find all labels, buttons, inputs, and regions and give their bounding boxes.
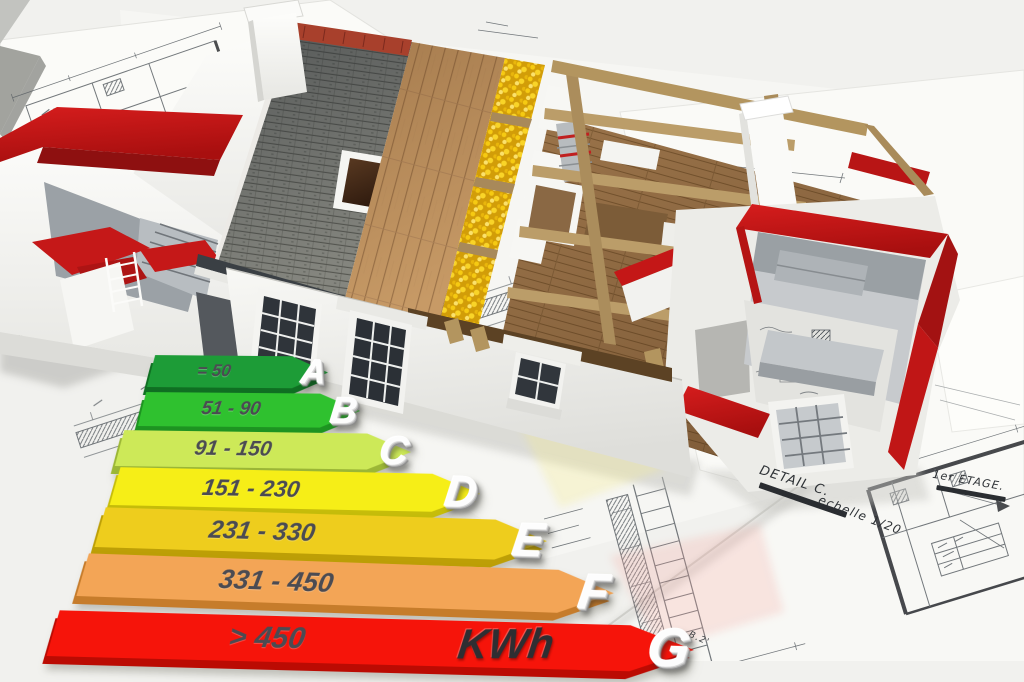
energy-bar-a: = 50A — [147, 355, 328, 398]
range-label-b: 51 - 90 — [200, 398, 262, 420]
rating-letter-e: E — [510, 516, 548, 564]
rating-letter-b: B — [329, 392, 360, 429]
range-label-d: 151 - 230 — [200, 474, 302, 503]
energy-rating-scale: = 50A51 - 90B91 - 150C151 - 230D231 - 33… — [40, 345, 780, 675]
rating-letter-f: F — [576, 567, 614, 618]
energy-efficiency-house-render: { "chart_data": { "type": "bar", "subtyp… — [0, 0, 1024, 661]
bar-face: 151 - 230 — [110, 467, 481, 513]
shelf-unit — [768, 394, 854, 476]
rating-letter-g: G — [645, 621, 694, 676]
range-label-c: 91 - 150 — [193, 437, 274, 462]
range-label-e: 231 - 330 — [207, 516, 318, 548]
rating-letter-d: D — [443, 470, 480, 515]
rating-letter-a: A — [300, 355, 328, 389]
kwh-unit-label: KWh — [455, 620, 557, 669]
bar-face: 91 - 150 — [115, 430, 411, 470]
bar-face: 51 - 90 — [138, 392, 360, 428]
range-label-a: = 50 — [196, 361, 233, 381]
range-label-g: > 450 — [226, 620, 308, 656]
rating-letter-c: C — [378, 431, 412, 471]
range-label-f: 331 - 450 — [216, 563, 335, 598]
